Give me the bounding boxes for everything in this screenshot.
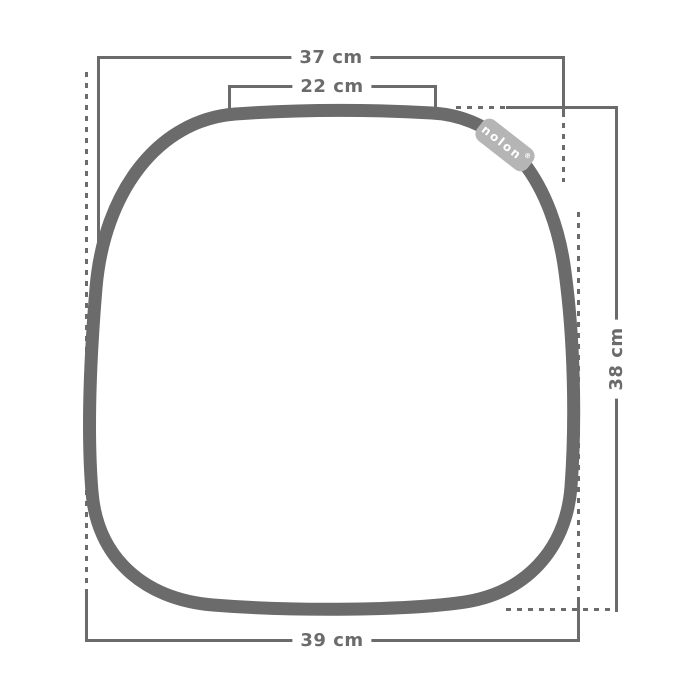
dim-bottom-width-label: 39 cm (292, 631, 371, 651)
seat-outline (89, 110, 573, 609)
dim-top-width-label: 37 cm (291, 48, 370, 68)
seat-drawing (0, 0, 700, 700)
dim-top-flat-width-label: 22 cm (292, 77, 371, 97)
seat-dimension-diagram: nolon® 37 cm 22 cm 39 cm 38 cm (0, 0, 700, 700)
dim-height-label: 38 cm (607, 319, 627, 398)
